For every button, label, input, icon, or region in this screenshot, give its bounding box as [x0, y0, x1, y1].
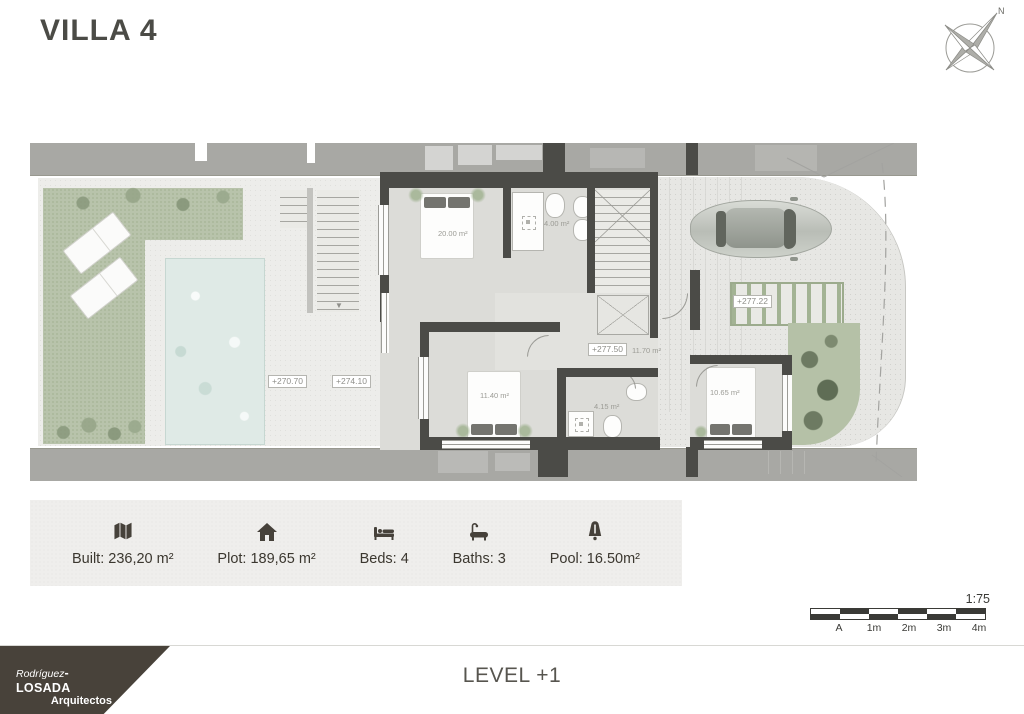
scale-tick: 1m [867, 622, 882, 634]
pillow [448, 197, 470, 208]
scale-ticks: A 1m 2m 3m 4m [810, 620, 990, 634]
page-title: VILLA 4 [40, 14, 158, 48]
brand-text: Rodríguez-LOSADA Arquitectos [16, 666, 112, 708]
info-item-built: Built: 236,20 m² [72, 520, 174, 567]
room-area-label: 11.70 m² [632, 346, 661, 355]
shower-tray [568, 411, 594, 437]
window [418, 357, 429, 419]
wall [587, 188, 595, 293]
room-area-label: 10.65 m² [710, 388, 740, 397]
wall [503, 188, 511, 258]
bed-double [467, 371, 521, 439]
scale-checker [810, 608, 986, 620]
wall [690, 270, 700, 330]
wall [557, 370, 566, 437]
info-item-baths: Baths: 3 [453, 520, 506, 567]
brand-subtitle: Arquitectos [16, 695, 112, 708]
window [782, 375, 792, 431]
info-item-plot: Plot: 189,65 m² [217, 520, 315, 567]
pillow [495, 424, 517, 435]
level-label: LEVEL +1 [463, 664, 561, 688]
window [704, 440, 762, 449]
home-icon [255, 520, 279, 544]
toilet [545, 193, 565, 218]
wall [380, 172, 658, 188]
wall [650, 188, 658, 338]
window [381, 293, 389, 353]
brand-first-name: Rodríguez [16, 668, 64, 680]
footer-divider [0, 645, 1024, 646]
compass-rose-icon: N [930, 2, 1010, 86]
pool-icon [583, 520, 607, 544]
toilet [603, 415, 622, 438]
bed-icon [372, 520, 396, 544]
plant [470, 187, 486, 203]
elevation-label: +277.50 [588, 343, 627, 356]
brand-logo: Rodríguez-LOSADA Arquitectos [0, 646, 170, 714]
floor-plan: ▼ +270.70 +274.10 +277.22 [30, 143, 917, 477]
info-item-pool: Pool: 16.50m² [550, 520, 640, 567]
stair-guides [595, 190, 650, 293]
wall [420, 322, 560, 332]
scale-bar: 1:75 A 1m 2m 3m 4m [810, 592, 990, 634]
compass-north-label: N [998, 6, 1005, 16]
wall [690, 355, 792, 364]
plant [408, 187, 424, 203]
room-area-label: 4.00 m² [544, 219, 569, 228]
scale-tick: 4m [972, 622, 987, 634]
window [442, 440, 530, 449]
room-area-label: 20.00 m² [438, 229, 468, 238]
scale-tick: A [835, 622, 842, 634]
pillow [424, 197, 446, 208]
wall [557, 368, 658, 377]
info-label: Plot: 189,65 m² [217, 551, 315, 567]
info-label: Built: 236,20 m² [72, 551, 174, 567]
pillow [732, 424, 752, 435]
shower-tray [512, 192, 544, 251]
room-area-label: 4.15 m² [594, 402, 619, 411]
info-label: Pool: 16.50m² [550, 551, 640, 567]
info-label: Baths: 3 [453, 551, 506, 567]
scale-ratio: 1:75 [810, 592, 990, 606]
info-bar: Built: 236,20 m² Plot: 189,65 m² Beds: 4 [30, 500, 682, 586]
info-item-beds: Beds: 4 [360, 520, 409, 567]
bed-double [420, 193, 474, 259]
stair-void [597, 295, 649, 335]
room-area-label: 11.40 m² [480, 391, 509, 400]
map-icon [111, 520, 135, 544]
pillow [471, 424, 493, 435]
pillow [710, 424, 730, 435]
scale-tick: 2m [902, 622, 917, 634]
info-label: Beds: 4 [360, 551, 409, 567]
window [378, 205, 389, 275]
scale-tick: 3m [937, 622, 952, 634]
bath-icon [467, 520, 491, 544]
